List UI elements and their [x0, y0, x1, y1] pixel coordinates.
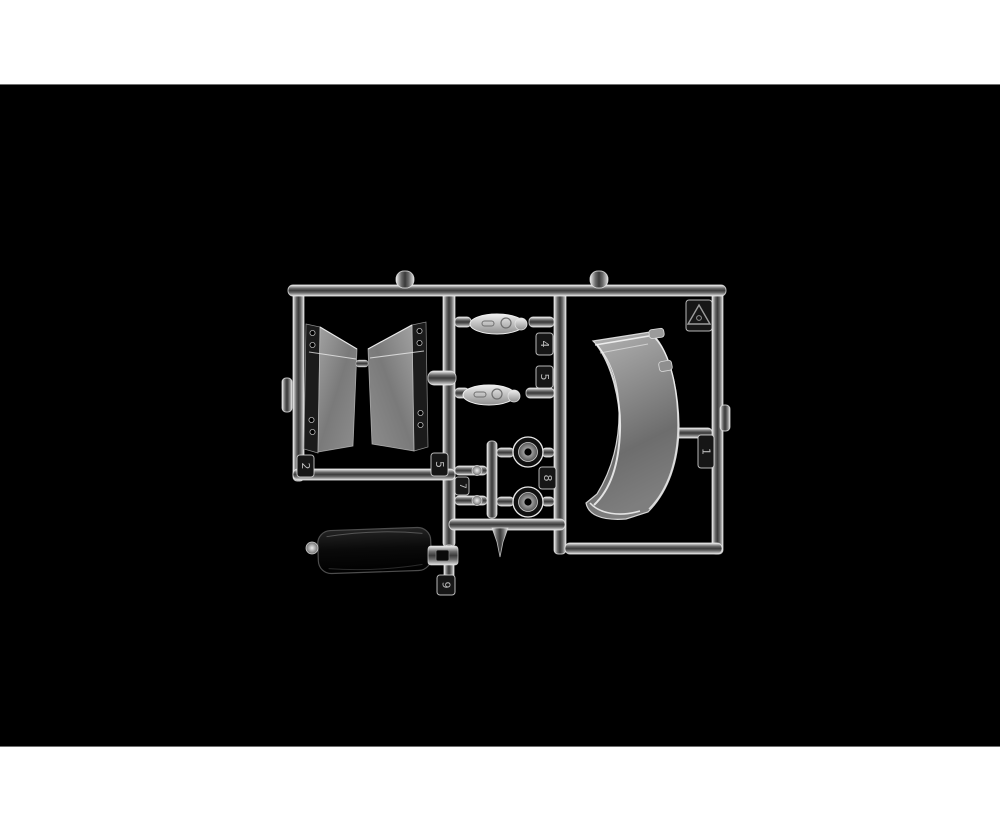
windscreen-part — [586, 328, 679, 519]
smoked-screen-body — [317, 527, 431, 574]
round-lens-upper — [513, 437, 543, 467]
deflector-right-hole-2 — [417, 340, 422, 345]
smoked-screen-part — [317, 527, 431, 574]
product-photo-page: 2 5 4 5 7 — [0, 0, 1000, 833]
part-tag-5-rail-label: 5 — [538, 374, 551, 381]
runner-left-vertical — [293, 287, 304, 481]
oval-lens-top-disc — [515, 318, 527, 330]
part-tag-7-label: 7 — [457, 483, 467, 489]
stub-left-edge — [282, 378, 292, 412]
part-tag-5-rail: 5 — [536, 366, 553, 388]
windscreen-mount-tab-1 — [649, 328, 665, 339]
runner-mini-rail — [487, 441, 497, 518]
part-tag-8-label: 8 — [541, 475, 554, 482]
oval-lens-middle-body — [463, 385, 515, 405]
deflector-right-face — [368, 325, 414, 451]
smoked-screen-knob — [306, 542, 318, 554]
runner-mid-right-rail — [554, 287, 566, 554]
part-tag-2: 2 — [297, 455, 314, 477]
deflector-left-hole-4 — [310, 429, 315, 434]
runner-mid-left-rail — [443, 287, 455, 547]
round-lens-lower-center — [524, 498, 532, 506]
sprue-gate-stub-right — [590, 271, 608, 288]
stub-roundlens-lower-right — [542, 497, 554, 506]
oval-lens-top — [470, 314, 527, 334]
round-lens-lower — [513, 487, 543, 517]
deflector-right-hole-4 — [418, 422, 423, 427]
recycling-mark — [686, 300, 712, 331]
part-tag-2-label: 2 — [299, 463, 312, 470]
oval-lens-middle — [463, 385, 520, 405]
stub-oval1-left — [455, 317, 471, 327]
windscreen-body — [586, 332, 679, 519]
stub-roundlens-lower-left — [497, 497, 514, 506]
part-tag-4: 4 — [536, 333, 553, 355]
stub-oval2-right — [526, 388, 554, 398]
round-lens-upper-center — [524, 448, 532, 456]
product-photo: 2 5 4 5 7 — [0, 85, 1000, 746]
deflector-panel-left — [304, 324, 357, 453]
deflector-bridge — [356, 360, 368, 367]
deflector-left-hole-2 — [310, 342, 315, 347]
stub-roundlens-upper-right — [542, 448, 554, 457]
cold-slug-spike — [492, 528, 508, 557]
runner-right-frame-bottom — [565, 543, 722, 554]
stub-oval1-right — [529, 317, 554, 327]
part-tag-1-label: 1 — [700, 448, 713, 455]
part-tag-4-label: 4 — [538, 341, 551, 348]
part-tag-7: 7 — [455, 477, 469, 495]
runner-top-horizontal — [288, 285, 726, 296]
deflector-right-hole-1 — [417, 328, 422, 333]
part-tag-8: 8 — [539, 467, 556, 489]
deflector-right-hole-3 — [418, 410, 423, 415]
deflector-left-hole-1 — [310, 330, 315, 335]
smoked-screen-collar-slot — [436, 550, 449, 561]
deflector-panel-right — [356, 322, 428, 451]
part-tag-9: 9 — [437, 575, 455, 595]
oval-lens-middle-disc — [508, 390, 520, 402]
sprue-gate-stub-left — [396, 271, 414, 288]
part-tag-9-label: 9 — [440, 582, 453, 589]
page-margin-top — [0, 0, 1000, 85]
link-deflector-rail — [428, 371, 456, 385]
part-tag-5-frame-label: 5 — [433, 461, 446, 468]
windscreen-mount-tab-2 — [658, 360, 673, 372]
sprue-photo-svg: 2 5 4 5 7 — [0, 85, 1000, 746]
deflector-left-hole-3 — [309, 417, 314, 422]
sprue: 2 5 4 5 7 — [282, 271, 730, 595]
knob-upper — [472, 466, 482, 476]
part-tag-1: 1 — [698, 435, 714, 468]
page-margin-bottom — [0, 746, 1000, 833]
stub-roundlens-upper-left — [497, 448, 514, 457]
knob-lower — [472, 496, 482, 506]
part-tag-5-frame: 5 — [431, 453, 448, 476]
stub-right-edge — [720, 405, 730, 431]
